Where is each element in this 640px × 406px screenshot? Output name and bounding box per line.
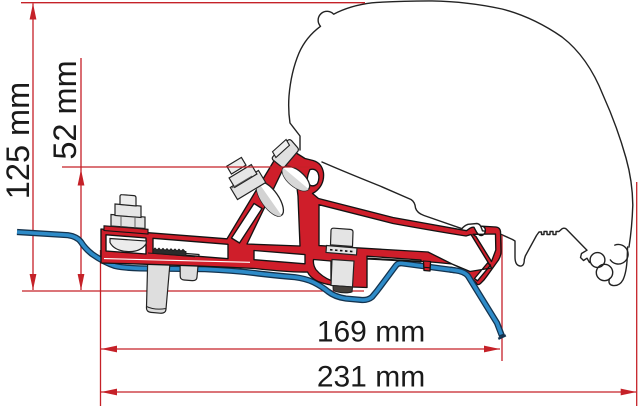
svg-text:231 mm: 231 mm bbox=[317, 361, 425, 394]
svg-text:169 mm: 169 mm bbox=[317, 316, 425, 349]
svg-text:52 mm: 52 mm bbox=[47, 60, 83, 159]
svg-text:125 mm: 125 mm bbox=[0, 82, 36, 199]
